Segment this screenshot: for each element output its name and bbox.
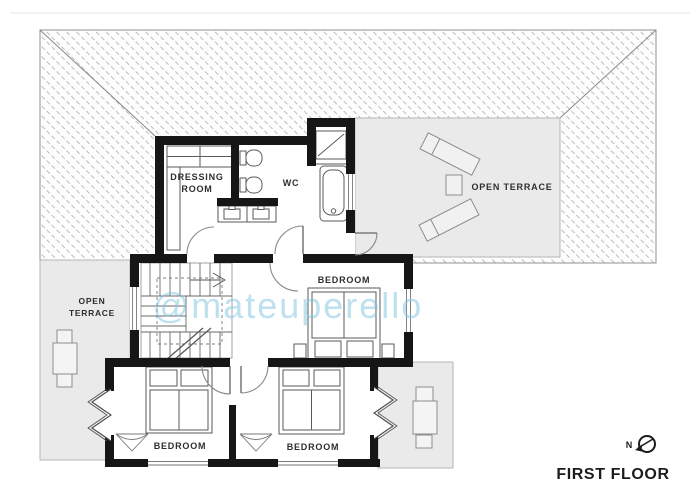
shower xyxy=(311,126,351,164)
bedroom-sw-label: BEDROOM xyxy=(154,441,207,451)
table xyxy=(53,343,77,374)
chair xyxy=(416,387,433,401)
north-label: N xyxy=(626,440,633,450)
chair xyxy=(57,330,72,343)
pillow xyxy=(181,370,208,386)
pillow xyxy=(283,370,309,386)
bedroom-center-label: BEDROOM xyxy=(318,275,371,285)
floor-plan-drawing: OPEN TERRACE OPEN TERRACE xyxy=(0,0,700,500)
window xyxy=(130,287,139,330)
pillow xyxy=(315,341,341,357)
terrace-right-label: OPEN TERRACE xyxy=(471,182,552,192)
toilet xyxy=(240,177,262,193)
terrace-right: OPEN TERRACE xyxy=(355,118,560,257)
double-sink xyxy=(218,206,276,222)
dressing-room-label-line2: ROOM xyxy=(181,184,212,194)
window xyxy=(148,459,208,467)
toilet xyxy=(240,150,262,166)
nightstand xyxy=(382,344,394,358)
watermark: @mateuperello xyxy=(153,285,424,326)
pillow xyxy=(150,370,177,386)
bathtub xyxy=(320,166,347,221)
terrace-bottom-right xyxy=(378,362,453,468)
window xyxy=(278,459,338,467)
compass: N xyxy=(626,436,655,452)
bedroom-se-label: BEDROOM xyxy=(287,442,340,452)
chair xyxy=(416,435,432,448)
dressing-room-label-line1: DRESSING xyxy=(170,172,223,182)
bed-southeast xyxy=(279,367,344,434)
bed-southwest xyxy=(146,367,212,433)
nightstand xyxy=(294,344,306,358)
compass-icon xyxy=(635,436,655,452)
table xyxy=(413,401,437,434)
terrace-left-label-line1: OPEN xyxy=(79,296,106,306)
plan-title: FIRST FLOOR xyxy=(556,466,669,483)
terrace-left-label-line2: TERRACE xyxy=(69,308,115,318)
wc-label: WC xyxy=(283,178,300,188)
pillow xyxy=(347,341,373,357)
window xyxy=(346,174,355,210)
floor-plan-sheet: OPEN TERRACE OPEN TERRACE xyxy=(0,0,700,500)
side-table xyxy=(446,175,462,195)
pillow xyxy=(314,370,340,386)
chair xyxy=(57,374,72,387)
